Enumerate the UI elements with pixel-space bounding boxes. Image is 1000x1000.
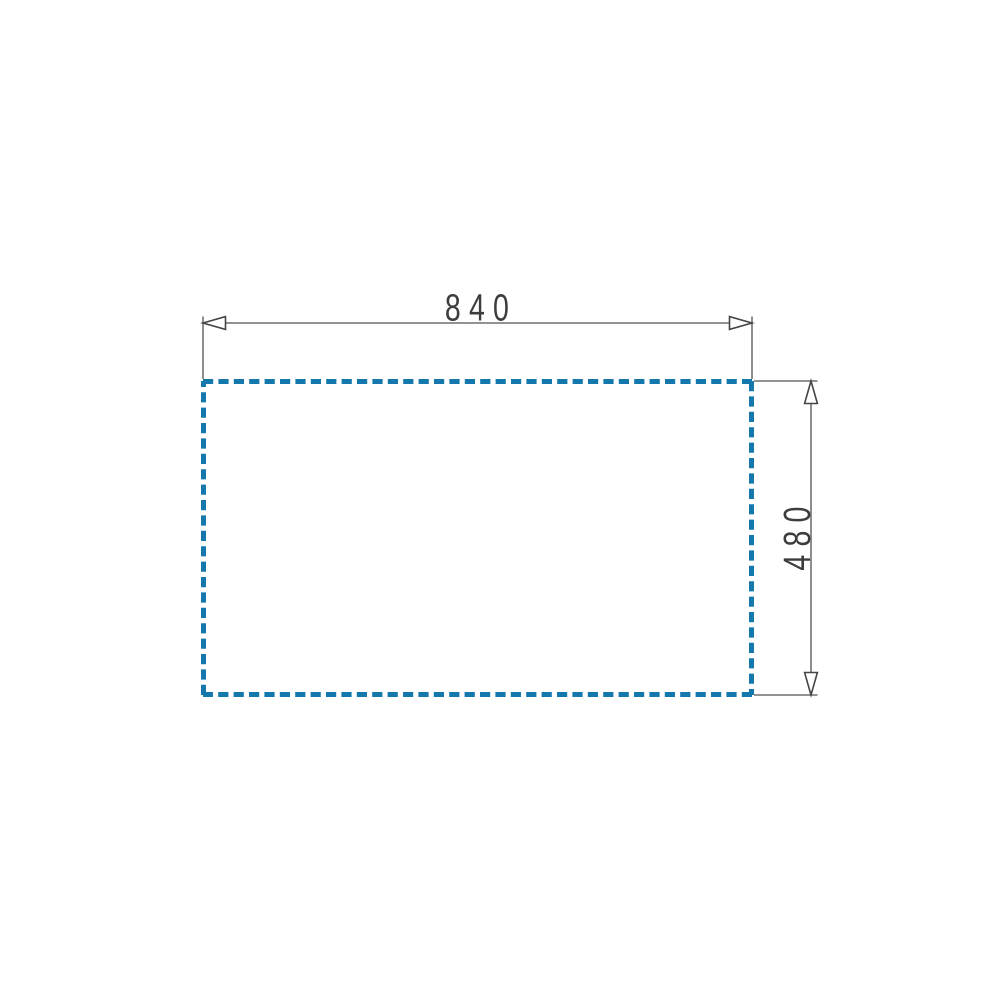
svg-text:480: 480 [777,498,819,570]
svg-text:840: 840 [445,288,517,330]
